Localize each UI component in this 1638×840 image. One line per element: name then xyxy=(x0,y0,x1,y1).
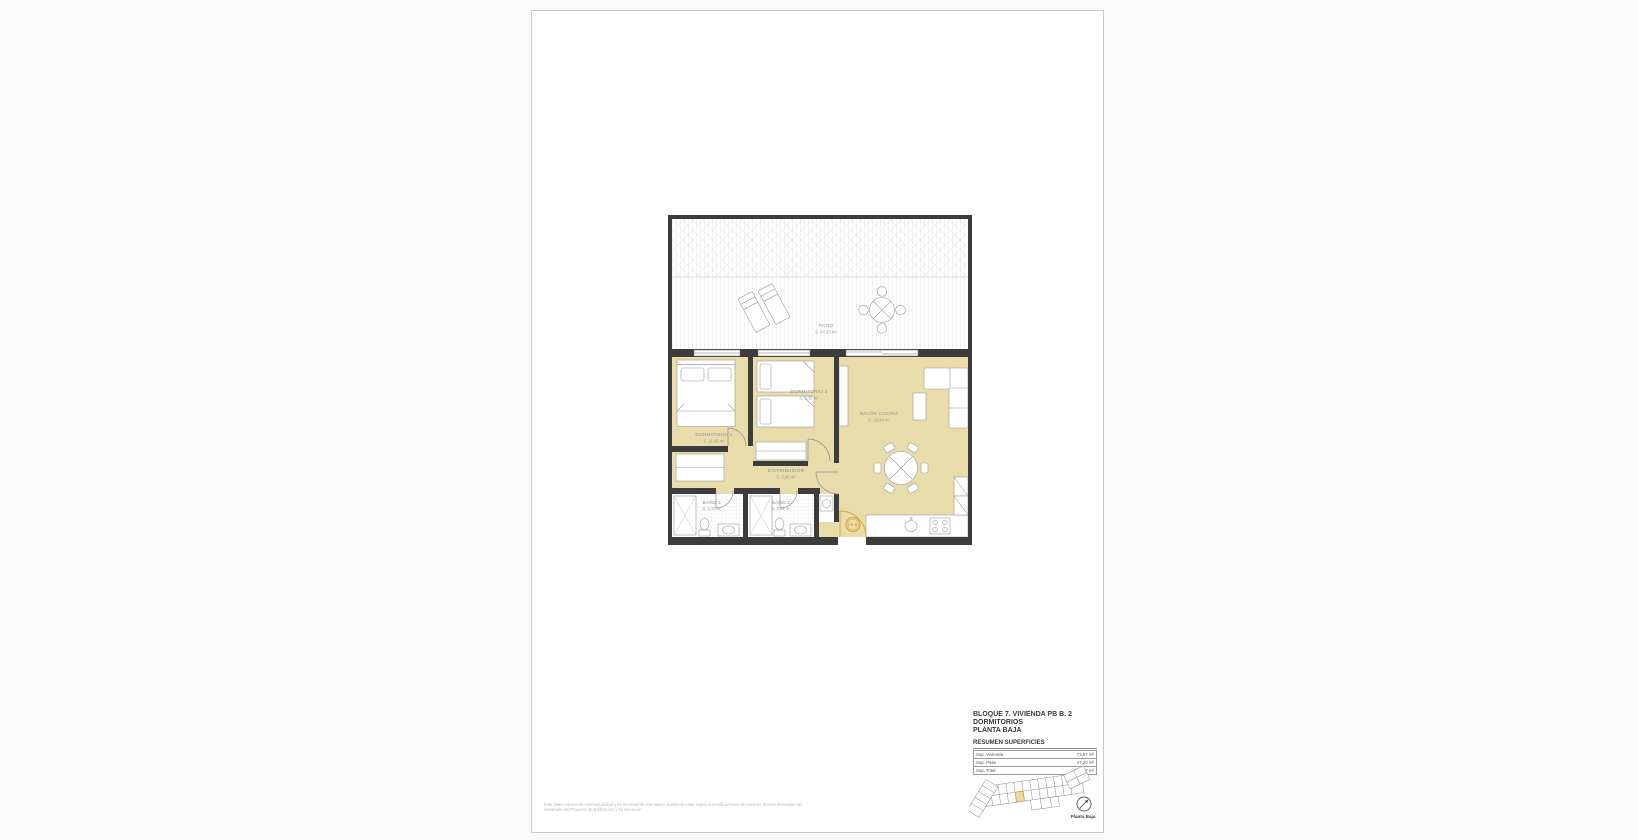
row-value: 73,57 m² xyxy=(1077,752,1094,757)
row-label: Sup. Vivienda xyxy=(976,752,1003,757)
room-area-dormitorio-1: S. 11,95 m² xyxy=(703,439,725,444)
room-area-patio: S. 47,20 m² xyxy=(815,330,837,335)
sheet-subtitle: PLANTA BAJA xyxy=(973,727,1097,735)
entry-badge-label: PB B xyxy=(848,523,858,527)
room-area-bano-1: S. 3,70 m² xyxy=(702,506,722,511)
disclaimer-text: Este plano carece de contractualidad y e… xyxy=(544,802,844,813)
floor-plan: PB B PATIO S. 47,20 m² DORMITORIO 1 S. 1… xyxy=(668,215,972,545)
key-plan-caption: Planta Baja xyxy=(1053,814,1113,819)
room-area-dormitorio-2: S. 9,35 m² xyxy=(799,396,819,401)
room-label-dormitorio-2: DORMITORIO 2 xyxy=(790,389,827,394)
surface-summary-heading: RESUMEN SUPERFICIES xyxy=(973,740,1097,749)
room-label-distribuidor: DISTRIBUIDOR xyxy=(768,468,805,473)
room-label-bano-2: BAÑO 2 xyxy=(772,499,791,505)
room-label-patio: PATIO xyxy=(819,323,834,328)
room-label-dormitorio-1: DORMITORIO 1 xyxy=(695,432,732,437)
north-arrow-icon xyxy=(1076,796,1092,812)
room-label-bano-1: BAÑO 1 xyxy=(703,499,722,505)
drawing-sheet: PB B PATIO S. 47,20 m² DORMITORIO 1 S. 1… xyxy=(531,10,1104,833)
disclaimer-line-2: desarrollo del Proyecto de Edificación y… xyxy=(544,807,844,812)
room-area-bano-2: S. 3,45 m² xyxy=(771,506,791,511)
key-plan-highlighted-unit xyxy=(1015,791,1024,802)
room-label-salon-cocina: SALÓN-COCINA xyxy=(860,410,899,416)
sheet-title: BLOQUE 7. VIVIENDA PB B. 2 DORMITORIOS xyxy=(973,711,1097,727)
floor-plan-svg: PB B PATIO S. 47,20 m² DORMITORIO 1 S. 1… xyxy=(668,215,972,545)
windows xyxy=(694,350,918,356)
room-area-salon-cocina: S. 28,40 m² xyxy=(868,418,890,423)
room-area-distribuidor: S. 2,80 m² xyxy=(776,475,796,480)
